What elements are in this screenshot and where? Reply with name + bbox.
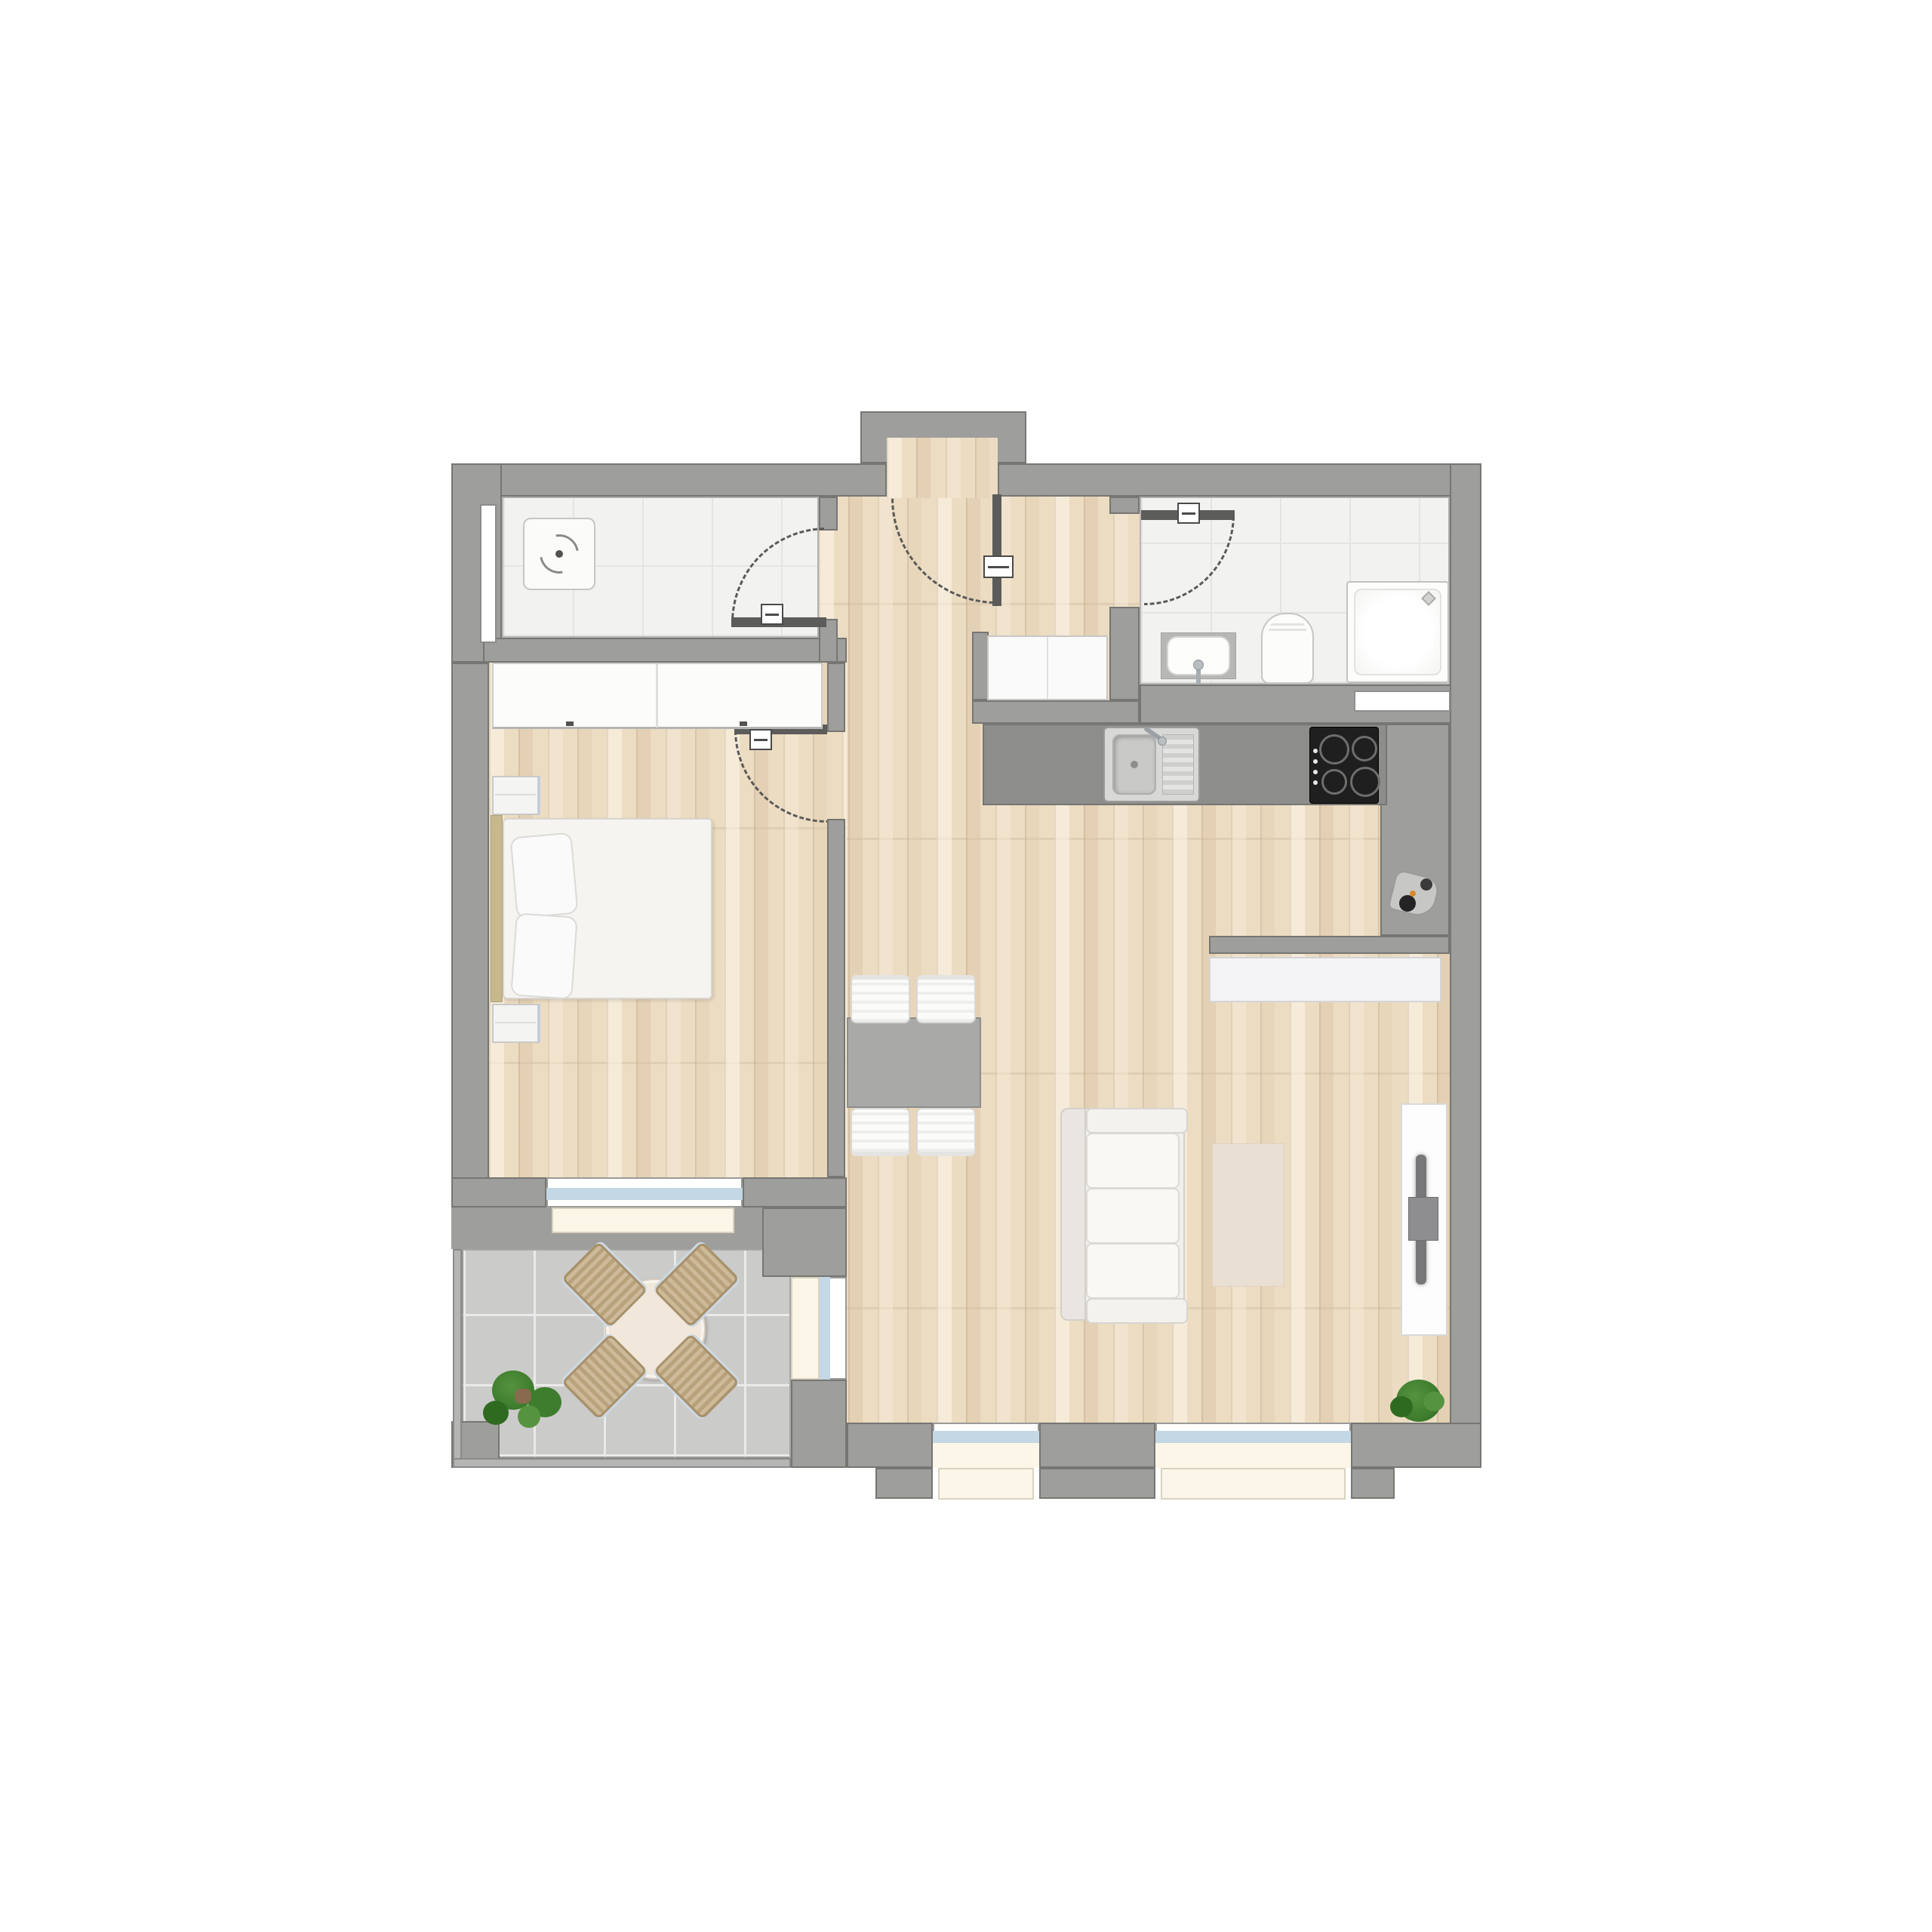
hob-knob-dot [1313,759,1318,764]
living-window-1-frame [933,1443,1039,1468]
bathroom-wall-shelf [1354,691,1451,712]
bedroom-balcony-door-glazing [546,1188,743,1200]
wall-closet-stub [972,632,989,700]
dining-chair [851,975,910,1023]
wardrobe-handle-icon [740,721,747,726]
wall-bedroom-right-lower [827,819,845,1177]
outer-stub-left [875,1468,933,1499]
outer-wall-right [1450,463,1481,1468]
entrance-door-handle-icon [983,555,1014,578]
hob-knob-dot [1313,749,1318,753]
pillow [509,832,578,919]
kitchen-sink-drain [1131,761,1138,768]
balcony-plant-pot-icon [515,1389,531,1404]
wall-bedroom-bottom-right [743,1177,847,1207]
wall-bathroom-left-stub-top [1109,497,1140,514]
dining-table [847,1017,981,1108]
wall-bathroom-left-lower [1109,607,1140,700]
balcony-plant-icon [518,1405,540,1428]
bedroom-door-swing-arc [734,730,827,823]
storage-door-handle-icon [761,604,783,625]
sofa-cushion [1086,1243,1180,1299]
outer-wall-bottom-c [1351,1423,1481,1468]
hob-burner [1321,769,1347,795]
balcony-slab-edge-left [453,1249,462,1468]
sofa-armrest [1086,1298,1188,1324]
wall-storage-bedroom [483,638,847,663]
outer-wall-left-lower [451,663,489,1207]
living-window-1-sill [938,1468,1034,1500]
sofa-armrest [1086,1108,1188,1134]
sofa-cushion [1086,1188,1180,1244]
wall-bedroom-right-stub-top [827,663,845,732]
vestibule-floor-patch [887,438,998,498]
living-window-2-sill [1161,1468,1346,1500]
hob-burner [1350,767,1380,797]
outer-wall-bottom-a [847,1423,933,1468]
corner-appliance-detail [1410,891,1416,897]
bedroom-door-handle-icon [749,729,772,750]
sofa-backrest [1060,1108,1086,1321]
bed-headboard [491,815,503,1002]
corner-appliance-detail [1420,878,1432,891]
living-balcony-door-sill [791,1277,820,1380]
wardrobe-divider [656,664,658,728]
nightstand [492,776,540,815]
hob-knob-dot [1313,780,1318,785]
hob-burner [1319,734,1349,764]
storage-window [480,504,497,643]
nightstand [492,1004,540,1043]
outer-stub-right [1351,1468,1395,1499]
bathroom-door-handle-icon [1177,503,1200,524]
wall-balcony-block-bottom [791,1380,847,1468]
corner-appliance-detail [1399,895,1416,912]
outer-stub-center [1039,1468,1155,1499]
wall-balcony-block-top [762,1207,847,1277]
dining-chair [851,1108,910,1156]
living-balcony-door-glazing [820,1277,830,1380]
outer-wall-bottom-b [1039,1423,1155,1468]
living-window-2-glazing [1155,1431,1351,1443]
living-window-2-frame [1155,1443,1351,1468]
dining-chair [916,975,976,1023]
hob-knob-dot [1313,770,1318,774]
kitchen-sink-drainboard [1162,734,1194,795]
dining-chair [916,1108,976,1156]
plant-icon [1390,1396,1413,1417]
rug [1212,1143,1284,1287]
bathroom-door-swing-arc [1144,515,1235,605]
floor-plan [0,0,1932,1932]
wall-storage-right-stub-top [819,497,838,531]
bedroom-balcony-door-sill [552,1207,734,1233]
entry-closet-divider [1047,637,1048,699]
sideboard [1209,957,1441,1002]
outer-wall-top-left [451,463,887,497]
wardrobe-handle-icon [566,721,574,726]
balcony-slab-edge-bottom [453,1458,791,1468]
entrance-door-swing-arc [891,498,997,604]
wall-bedroom-bottom-left [451,1177,546,1207]
tv-mount [1408,1197,1438,1241]
washbasin-tap-knob-icon [1193,660,1204,670]
toilet-lid-lines [1269,620,1306,631]
pillow [510,912,577,999]
sofa-cushion [1086,1133,1180,1189]
hob-burner [1352,736,1377,761]
plant-icon [1423,1392,1444,1411]
outer-wall-top-right [998,463,1481,497]
kitchen-faucet-knob-icon [1158,737,1167,746]
balcony-plant-icon [483,1401,509,1425]
wall-band-living [1209,936,1450,954]
wall-band-closet [972,700,1140,724]
living-window-1-glazing [933,1431,1039,1443]
